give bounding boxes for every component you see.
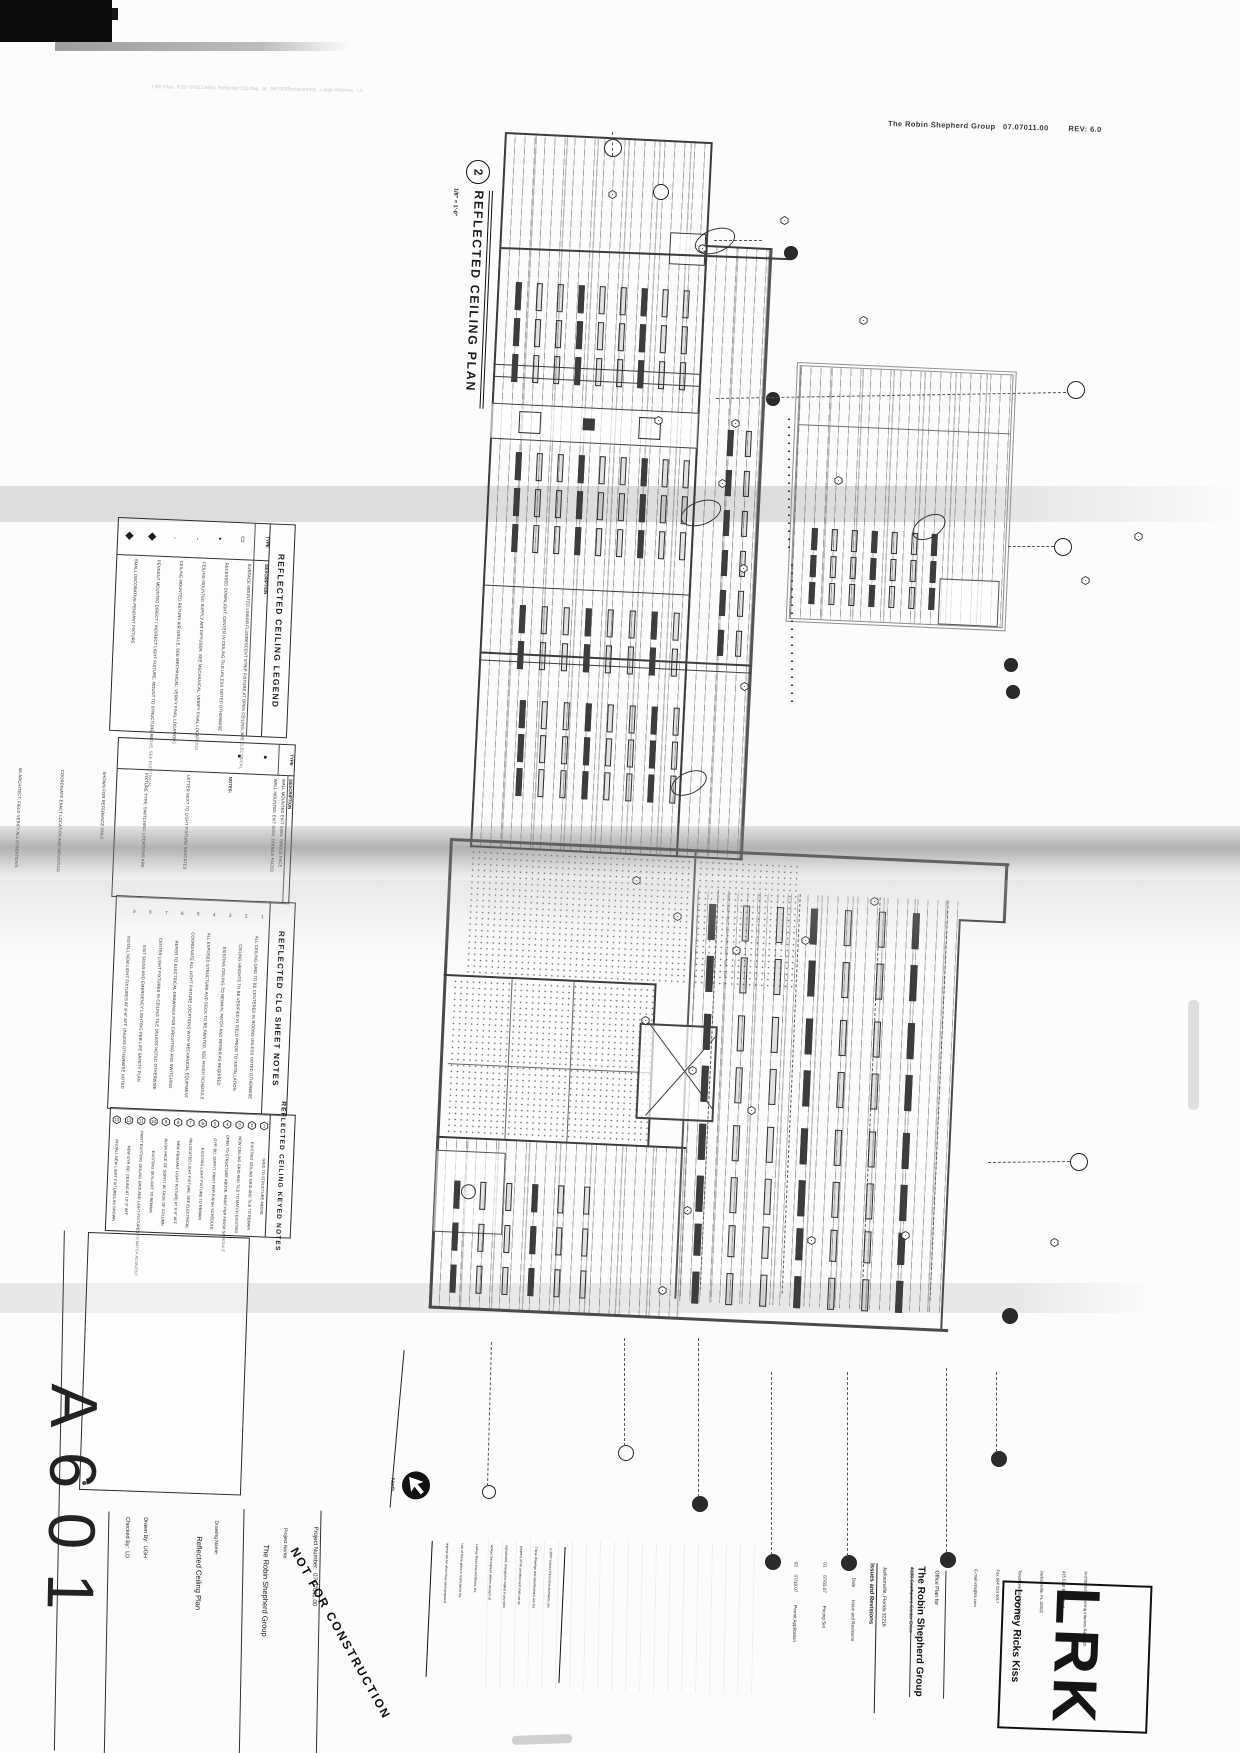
- light-fixture: [681, 326, 688, 354]
- light-fixture: [719, 590, 726, 616]
- light-fixture: [650, 706, 657, 734]
- plot-stamp-right: The Robin Shepherd Group 07.07011.00 REV…: [888, 119, 1102, 134]
- light-fixture: [563, 607, 570, 635]
- light-fixture: [705, 956, 714, 992]
- keyed-note-text: EXISTING LIGHT FIXTURE TO REMAIN: [195, 1134, 205, 1234]
- light-fixture: [811, 528, 818, 550]
- light-fixture: [831, 529, 838, 551]
- keyed-note-text: NEW CEILING GRID AND TILE TO MATCH EXIST…: [232, 1135, 242, 1235]
- light-fixture: [449, 1264, 456, 1292]
- light-fixture: [698, 1124, 707, 1160]
- legend-symbol: ·: [185, 521, 209, 558]
- legend-col-type: TYPE: [253, 524, 270, 561]
- grid-bubble: [940, 1552, 956, 1568]
- leader-line: [612, 132, 613, 156]
- light-fixture: [536, 453, 543, 481]
- title-block-strip: A601 Drawn By: UGH Checked By: LD Drawin…: [0, 1334, 1240, 1753]
- light-fixture-cluster: [511, 282, 705, 399]
- keyed-note-text: EXISTING CEILING GRID AND TILE TO REMAIN: [245, 1136, 255, 1236]
- dotted-line: [791, 562, 793, 702]
- light-fixture: [627, 646, 634, 674]
- scan-edge-gray-bar: [55, 42, 350, 51]
- light-fixture: [519, 605, 526, 633]
- keyed-note-text: GRID TO STRUCTURE ABOVE: [257, 1136, 267, 1236]
- view-scale: 1/8" = 1'-0": [451, 188, 458, 217]
- light-fixture: [797, 1180, 806, 1216]
- light-fixture: [671, 741, 678, 769]
- light-fixture: [559, 770, 566, 798]
- grid-bubble: [841, 1555, 857, 1571]
- keyed-note-number: 7: [186, 1118, 195, 1127]
- light-fixture: [708, 904, 717, 940]
- legend-symbol: •: [208, 522, 232, 559]
- light-fixture: [890, 559, 897, 581]
- light-fixture: [839, 1020, 848, 1056]
- light-fixture: [513, 488, 520, 516]
- leader-line: [847, 1372, 848, 1556]
- light-fixture: [691, 1271, 699, 1303]
- light-fixture: [793, 1276, 801, 1308]
- grid-bubble: [618, 1445, 634, 1461]
- light-fixture: [561, 643, 568, 671]
- light-fixture: [511, 354, 518, 382]
- light-fixture: [834, 1130, 843, 1166]
- legend-title: REFLECTED CEILING LEGEND: [270, 553, 286, 708]
- keyed-note-text: NEW PENDANT LIGHT FIXTURE AT 9'-0" AFF: [171, 1133, 181, 1233]
- light-fixture: [649, 647, 656, 675]
- light-fixture: [595, 528, 602, 556]
- light-fixture: [597, 492, 604, 520]
- light-fixture-cluster: [695, 1124, 937, 1239]
- drawn-by-field: Drawn By: UGH Checked By: LD: [112, 1517, 161, 1559]
- light-fixture: [574, 357, 581, 385]
- keyed-note-text: INSTALL NEW LIGHT FIXTURES AS SHOWN: [109, 1130, 119, 1230]
- light-fixture: [519, 700, 526, 728]
- leader-line: [771, 1372, 772, 1555]
- project-name-label: Project Name:: [282, 1528, 289, 1560]
- note-number: 2: [245, 913, 248, 918]
- light-fixture: [620, 457, 627, 485]
- keyed-note-number: 9: [161, 1117, 170, 1126]
- light-fixture: [909, 965, 918, 1001]
- light-fixture: [581, 1228, 588, 1256]
- light-fixture: [735, 631, 742, 657]
- light-fixture: [620, 287, 627, 315]
- light-fixture: [553, 1269, 560, 1297]
- light-fixture: [661, 459, 668, 487]
- plot-stamp-left: LRK Files P:\07-07011\A601 Reflected Clg…: [152, 84, 363, 94]
- light-fixture: [875, 963, 884, 999]
- light-fixture: [511, 524, 518, 552]
- light-fixture: [661, 289, 668, 317]
- note-number: 5: [197, 911, 200, 916]
- light-fixture: [865, 1183, 874, 1219]
- light-fixture: [725, 1273, 733, 1305]
- note-number: 3: [229, 913, 232, 918]
- keyed-note-number: 10: [149, 1117, 158, 1126]
- keyed-note-badge: 5: [210, 1119, 219, 1128]
- light-fixture: [867, 1131, 876, 1167]
- note-number: 7: [165, 910, 168, 915]
- scan-edge-black-nib: [112, 8, 118, 20]
- light-fixture: [763, 1179, 772, 1215]
- light-fixture: [773, 959, 782, 995]
- light-fixture: [844, 910, 853, 946]
- light-fixture: [607, 704, 614, 732]
- light-fixture: [505, 1183, 512, 1211]
- light-fixture: [536, 283, 543, 311]
- note-number: 4: [213, 912, 216, 917]
- light-fixture: [802, 1070, 811, 1106]
- light-fixture: [829, 1230, 837, 1262]
- firm-name: Looney Ricks Kiss: [1007, 1589, 1024, 1721]
- light-fixture: [503, 1225, 510, 1253]
- legend2-col-type: TYPE: [278, 745, 295, 776]
- keyed-notes-table: REFLECTED CEILING KEYED NOTES 1GRID TO S…: [105, 1107, 296, 1239]
- light-fixture: [637, 360, 644, 388]
- light-fixture: [555, 490, 562, 518]
- light-fixture: [827, 1278, 835, 1310]
- light-fixture: [761, 1227, 769, 1259]
- leader-line: [996, 1372, 997, 1452]
- light-fixture: [557, 454, 564, 482]
- legend-symbol: ◆: [140, 519, 164, 556]
- light-fixture: [658, 531, 665, 559]
- light-fixture: [515, 452, 522, 480]
- light-fixture: [629, 705, 636, 733]
- light-fixture: [515, 282, 522, 310]
- light-fixture: [527, 1268, 534, 1296]
- light-fixture: [908, 587, 915, 609]
- drawing-name-label: Drawing Name:: [213, 1521, 220, 1556]
- ceiling-symbol-hex: [780, 216, 789, 225]
- light-fixture: [451, 1223, 458, 1251]
- light-fixture: [534, 319, 541, 347]
- light-fixture: [578, 285, 585, 313]
- light-fixture: [576, 491, 583, 519]
- light-fixture: [583, 737, 590, 765]
- grid-bubble: [653, 184, 669, 200]
- keyed-note-badge: 10: [149, 1117, 158, 1126]
- sheet-notes-title: REFLECTED CLG SHEET NOTES: [271, 931, 287, 1087]
- light-fixture: [771, 1017, 780, 1053]
- light-fixture: [529, 1226, 536, 1254]
- light-fixture: [868, 585, 875, 607]
- light-fixture: [795, 1228, 803, 1260]
- light-fixture: [618, 323, 625, 351]
- light-fixture: [850, 557, 857, 579]
- light-fixture: [639, 494, 646, 522]
- keyed-note-badge: 3: [235, 1120, 244, 1129]
- light-fixture: [899, 1185, 908, 1221]
- keyed-note-number: 1: [260, 1121, 269, 1130]
- light-fixture: [585, 703, 592, 731]
- grid-bubble: [1054, 538, 1072, 556]
- light-fixture: [851, 530, 858, 552]
- light-fixture: [904, 1075, 913, 1111]
- scanned-drawing-sheet: LRK Files P:\07-07011\A601 Reflected Clg…: [0, 0, 1240, 1753]
- keyed-note-badge: 8: [173, 1118, 182, 1127]
- light-fixture: [759, 1275, 767, 1307]
- not-for-construction-stamp: NOT FOR CONSTRUCTION: [288, 1545, 378, 1692]
- light-fixture-cluster: [516, 605, 695, 686]
- light-fixture: [599, 456, 606, 484]
- light-fixture: [605, 645, 612, 673]
- legend-symbol: ▯: [231, 523, 255, 560]
- light-fixture: [721, 550, 728, 576]
- light-fixture: [640, 458, 647, 486]
- keyed-note-badge: 12: [124, 1116, 133, 1125]
- legend-symbol: ·: [163, 520, 187, 557]
- light-fixture: [727, 1225, 735, 1257]
- light-fixture: [671, 648, 678, 676]
- note-number: 1: [261, 914, 264, 919]
- light-fixture: [717, 630, 724, 656]
- view-number: 2: [467, 168, 489, 175]
- light-fixture: [872, 1021, 881, 1057]
- dotted-line: [788, 418, 790, 548]
- keyed-note-number: 5: [210, 1119, 219, 1128]
- light-fixture: [836, 1072, 845, 1108]
- keyed-note-badge: 1: [260, 1121, 269, 1130]
- light-fixture: [603, 772, 610, 800]
- light-fixture: [541, 701, 548, 729]
- light-fixture: [848, 584, 855, 606]
- light-fixture: [557, 284, 564, 312]
- light-fixture: [929, 561, 936, 583]
- grid-bubble: [991, 1451, 1007, 1467]
- grid-bubble: [1002, 1308, 1018, 1324]
- light-fixture: [531, 1184, 538, 1212]
- light-fixture: [563, 702, 570, 730]
- light-fixture: [723, 510, 730, 536]
- keyed-note-text: OPEN TO STRUCTURE ABOVE, PAINT PER FINIS…: [220, 1135, 230, 1235]
- sheet-notes-table: REFLECTED CLG SHEET NOTES 1ALL CEILING G…: [107, 895, 296, 1116]
- legend2-symbol: ●: [252, 744, 279, 775]
- light-fixture-cluster: [700, 1014, 942, 1129]
- light-fixture: [870, 1073, 879, 1109]
- light-fixture: [739, 551, 746, 577]
- light-fixture: [607, 609, 614, 637]
- light-fixture: [906, 1023, 915, 1059]
- drawing-name: Reflected Ceiling Plan: [194, 1536, 204, 1610]
- reflected-ceiling-legend-table: REFLECTED CEILING LEGEND TYPE ▯ • · · ◆ …: [109, 517, 296, 738]
- light-fixture: [583, 1186, 590, 1214]
- light-fixture: [517, 641, 524, 669]
- light-fixture: [595, 358, 602, 386]
- keyed-note-number: 13: [112, 1115, 121, 1124]
- grid-bubble: [784, 246, 798, 260]
- leader-line: [1008, 546, 1054, 547]
- leader-line: [988, 1161, 1070, 1163]
- legend2-notes: NOTES: LETTER NEXT TO LIGHT FIXTURE INDI…: [0, 760, 271, 902]
- light-fixture: [863, 1231, 871, 1263]
- firm-logo-box: Looney Ricks Kiss LRK: [997, 1580, 1152, 1733]
- legend-continued-table: TYPE ● ● DESCRIPTION WALL MOUNTED EXIT S…: [111, 737, 296, 904]
- light-fixture: [532, 355, 539, 383]
- light-fixture: [895, 1281, 903, 1313]
- leader-line: [698, 1338, 699, 1497]
- light-fixture: [639, 324, 646, 352]
- light-fixture: [515, 768, 522, 796]
- revision-row: 01 07/05.07 Pricing Set: [808, 1562, 840, 1713]
- light-fixture: [682, 460, 689, 488]
- keyed-note-badge: 2: [247, 1121, 256, 1130]
- light-fixture: [479, 1182, 486, 1210]
- ceiling-symbol-hex: [1134, 532, 1143, 541]
- grid-bubble: [765, 1554, 781, 1570]
- scan-streaks: [472, 1539, 755, 1694]
- light-fixture: [537, 769, 544, 797]
- light-fixture: [703, 1014, 712, 1050]
- light-fixture: [585, 608, 592, 636]
- light-fixture: [513, 318, 520, 346]
- light-fixture: [599, 286, 606, 314]
- light-fixture: [553, 356, 560, 384]
- light-fixture: [637, 530, 644, 558]
- light-fixture: [541, 606, 548, 634]
- light-fixture: [810, 908, 819, 944]
- keyed-note-number: 2: [247, 1121, 256, 1130]
- light-fixture: [861, 1279, 869, 1311]
- light-fixture: [682, 290, 689, 318]
- client-name: The Robin Shepherd Group: [913, 1566, 927, 1697]
- scan-edge-black-corner: [0, 0, 112, 42]
- legend-symbol: ◆: [117, 518, 141, 555]
- leader-line: [624, 1338, 625, 1446]
- light-fixture: [877, 912, 886, 948]
- light-fixture: [532, 525, 539, 553]
- light-fixture: [741, 511, 748, 537]
- light-fixture: [841, 962, 850, 998]
- keyed-notes-title: REFLECTED CEILING KEYED NOTES: [274, 1101, 287, 1252]
- legend2-symbol: ●: [226, 743, 253, 774]
- light-fixture: [579, 1270, 586, 1298]
- light-fixture: [649, 740, 656, 768]
- light-fixture: [616, 359, 623, 387]
- keyed-note-number: 12: [124, 1116, 133, 1125]
- light-fixture: [453, 1181, 460, 1209]
- light-fixture: [583, 644, 590, 672]
- light-fixture: [693, 1224, 701, 1256]
- light-fixture: [658, 361, 665, 389]
- light-fixture: [808, 582, 815, 604]
- light-fixture: [616, 529, 623, 557]
- view-title: REFLECTED CEILING PLAN: [462, 190, 492, 409]
- light-fixture: [870, 558, 877, 580]
- light-fixture: [629, 610, 636, 638]
- light-fixture: [734, 1067, 743, 1103]
- light-fixture: [830, 556, 837, 578]
- light-fixture: [909, 560, 916, 582]
- light-fixture: [605, 738, 612, 766]
- grid-bubble: [604, 139, 622, 157]
- light-fixture-cluster: [449, 1264, 607, 1313]
- keyed-note-text: GYP. BD. SOFFIT, PAINT PER FINISH SCHEDU…: [208, 1134, 218, 1234]
- light-fixture-cluster: [808, 528, 952, 616]
- light-fixture: [831, 1182, 840, 1218]
- light-fixture: [627, 739, 634, 767]
- ceiling-box: [583, 418, 596, 431]
- keyed-note-badge: 13: [112, 1115, 121, 1124]
- keyed-note-text: PAINT EXISTING CEILING GRID AND LIGHT FI…: [134, 1131, 144, 1231]
- light-fixture: [574, 527, 581, 555]
- light-fixture: [737, 1015, 746, 1051]
- light-fixture: [477, 1224, 484, 1252]
- light-fixture: [672, 708, 679, 736]
- light-fixture: [891, 532, 898, 554]
- light-fixture: [745, 431, 752, 457]
- light-fixture: [534, 489, 541, 517]
- light-fixture: [581, 771, 588, 799]
- keyed-note-badge: 9: [161, 1117, 170, 1126]
- keyed-note-badge: 11: [137, 1116, 146, 1125]
- keyed-note-number: 6: [198, 1119, 207, 1128]
- light-fixture: [695, 1176, 704, 1212]
- light-fixture-cluster: [451, 1181, 611, 1272]
- leader-line: [946, 1368, 947, 1552]
- grid-bubble: [1067, 381, 1085, 399]
- light-fixture: [672, 613, 679, 641]
- note-number: 8: [149, 909, 152, 914]
- firm-logo: LRK: [1037, 1586, 1113, 1727]
- light-fixture: [807, 960, 816, 996]
- light-fixture: [660, 495, 667, 523]
- light-fixture: [911, 913, 920, 949]
- grid-bubble: [482, 1485, 496, 1499]
- revision-row: 02 07/18.07 Permit Application: [779, 1561, 811, 1712]
- grid-bubble: [1070, 1153, 1088, 1171]
- light-fixture: [901, 1133, 910, 1169]
- project-name: The Robin Shepherd Group: [260, 1544, 271, 1636]
- light-fixture-cluster: [511, 452, 705, 569]
- keyed-note-badge: 4: [223, 1120, 232, 1129]
- light-fixture: [727, 430, 734, 456]
- keyed-note-number: 11: [137, 1116, 146, 1125]
- light-fixture: [517, 734, 524, 762]
- light-fixture: [647, 774, 654, 802]
- light-fixture: [871, 531, 878, 553]
- ceiling-box: [518, 411, 541, 434]
- light-fixture: [553, 526, 560, 554]
- view-number-circle: 2: [464, 158, 491, 185]
- light-fixture: [640, 288, 647, 316]
- keyed-note-text: ALIGN FACE OF SOFFIT W/ FACE OF COLUMN: [159, 1132, 169, 1232]
- keyed-note-number: 4: [223, 1120, 232, 1129]
- keyed-note-text: RELOCATED LIGHT FIXTURE, SEE ELECTRICAL: [183, 1133, 193, 1233]
- ceiling-symbol-hex: [1050, 1238, 1059, 1247]
- light-fixture: [561, 736, 568, 764]
- grid-bubble: [766, 392, 780, 406]
- light-fixture: [888, 586, 895, 608]
- grid-bubble: [1004, 658, 1018, 672]
- note-number: 9: [133, 909, 136, 914]
- light-fixture: [742, 905, 751, 941]
- light-fixture: [743, 471, 750, 497]
- grid-bubble: [1006, 685, 1020, 699]
- keyed-note-text: NEW GYP. BD. CEILING AT 10'-0" AFF: [122, 1131, 132, 1231]
- light-fixture: [800, 1128, 809, 1164]
- north-arrow-icon: [401, 1470, 432, 1501]
- grid-bubble: [692, 1496, 708, 1512]
- ceiling-symbol-hex: [859, 316, 868, 325]
- office-plan-label: Office Plan for: [933, 1570, 940, 1605]
- light-fixture: [766, 1127, 775, 1163]
- note-text: INSTALL NEW LIGHT FIXTURES AT 9'-6" AFF …: [118, 917, 132, 1107]
- light-fixture: [625, 773, 632, 801]
- light-fixture: [776, 907, 785, 943]
- light-fixture: [650, 611, 657, 639]
